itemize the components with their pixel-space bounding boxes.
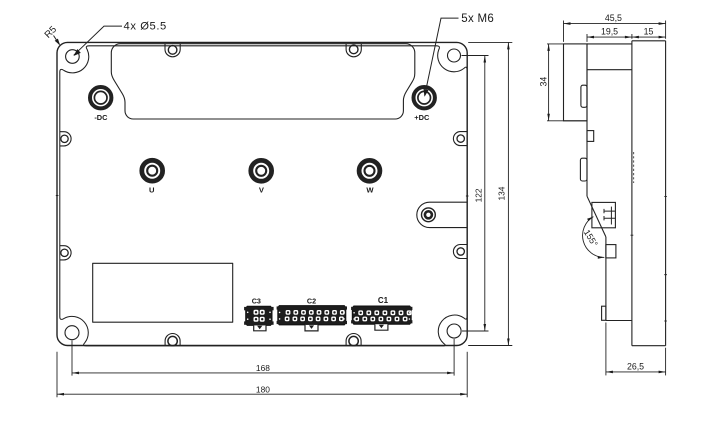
svg-text:19,5: 19,5 — [601, 27, 618, 37]
svg-text:4x Ø5.5: 4x Ø5.5 — [124, 21, 167, 33]
svg-text:U: U — [149, 186, 155, 195]
svg-text:26,5: 26,5 — [627, 362, 644, 372]
svg-text:C1: C1 — [378, 296, 389, 305]
svg-text:34: 34 — [539, 77, 549, 87]
svg-text:W: W — [366, 186, 374, 195]
svg-text:V: V — [259, 186, 265, 195]
svg-text:122: 122 — [474, 188, 484, 202]
svg-text:C3: C3 — [252, 296, 261, 305]
svg-text:5x M6: 5x M6 — [461, 13, 494, 25]
svg-text:C2: C2 — [307, 296, 316, 305]
svg-text:180: 180 — [256, 385, 270, 395]
svg-text:R5: R5 — [43, 24, 59, 40]
svg-text:134: 134 — [497, 186, 507, 200]
svg-text:-DC: -DC — [94, 113, 108, 122]
svg-text:15: 15 — [644, 27, 654, 37]
svg-text:168: 168 — [256, 363, 270, 373]
svg-text:+DC: +DC — [414, 113, 430, 122]
svg-text:45,5: 45,5 — [605, 13, 622, 23]
